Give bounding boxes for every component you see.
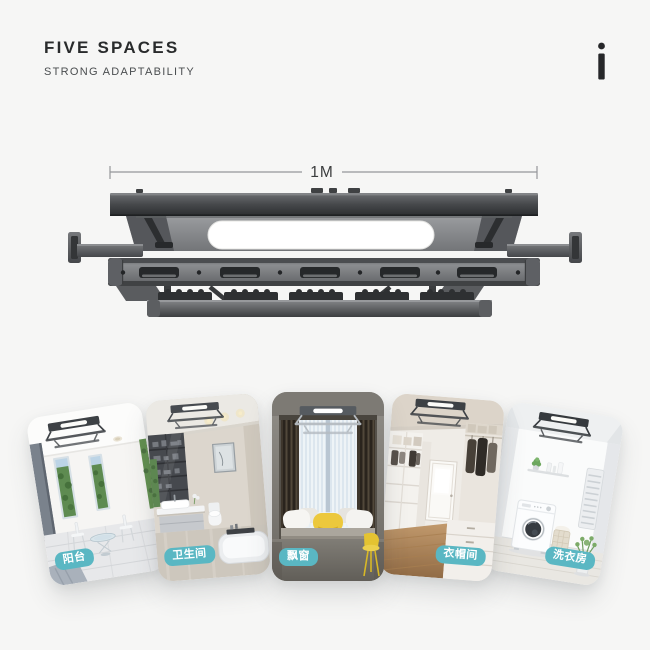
- led-light-panel: [208, 221, 434, 249]
- drying-rack-render: 1M: [60, 150, 590, 330]
- drying-rack-icon: [165, 401, 225, 434]
- drying-rack-icon: [294, 405, 362, 439]
- lower-hanger-rail: [147, 289, 492, 317]
- ceiling-mount-tabs: [136, 188, 512, 193]
- page-title: FIVE SPACES: [44, 38, 179, 58]
- drying-rack-icon: [409, 397, 471, 432]
- room-label-badge: 衣帽间: [435, 545, 487, 567]
- space-card-cloakroom: 衣帽间: [379, 393, 505, 582]
- letter-i-icon: [595, 41, 608, 81]
- wall-art: [213, 443, 236, 473]
- space-card-bay-window: 飘窗: [272, 392, 384, 581]
- space-card-bathroom: 卫生间: [145, 393, 271, 582]
- space-card-balcony: 阳台: [25, 401, 166, 587]
- space-card-laundry-room: 洗衣房: [483, 401, 624, 587]
- room-label-badge: 飘窗: [279, 548, 318, 566]
- brand-logo-icon: [595, 41, 608, 81]
- page-subtitle: STRONG ADAPTABILITY: [44, 66, 195, 78]
- product-illustration: 1M: [60, 150, 590, 330]
- mount-housing: [110, 193, 538, 216]
- upper-drying-rail: [108, 258, 540, 286]
- back-door: [425, 460, 457, 522]
- product-showcase-page: FIVE SPACES STRONG ADAPTABILITY: [0, 0, 650, 650]
- dimension-label: 1M: [310, 164, 334, 181]
